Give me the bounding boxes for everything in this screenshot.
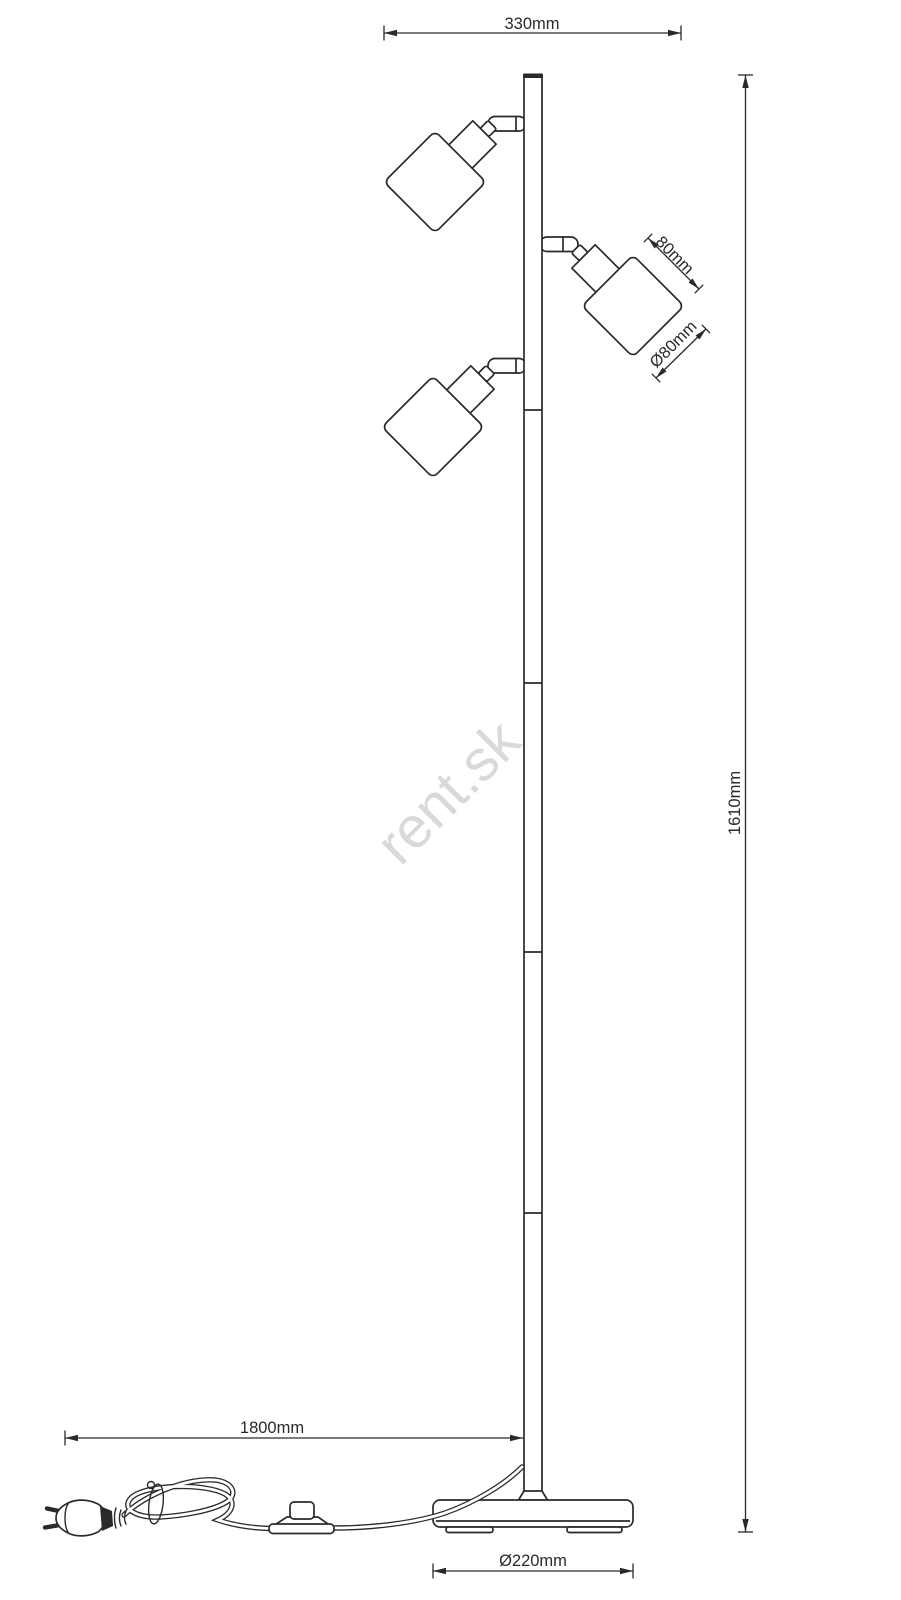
dimension-total-height: 1610mm	[726, 75, 753, 1532]
dimension-cable-length: 1800mm	[65, 1419, 523, 1446]
floor-lamp-dimension-drawing: rent.sk 330mm 1610mm 80mm Ø80mm	[0, 0, 901, 1600]
dimension-total-height-label: 1610mm	[726, 771, 744, 835]
lamp-arm	[540, 237, 578, 252]
lamp-head-bottom	[382, 344, 526, 478]
switch-button	[290, 1502, 314, 1519]
technical-drawing-page: rent.sk 330mm 1610mm 80mm Ø80mm	[0, 0, 901, 1600]
pole-top-cap	[523, 74, 543, 79]
pole-body	[524, 75, 542, 1500]
plug-strain-relief-ribs	[115, 1508, 127, 1528]
foot-switch	[269, 1502, 334, 1534]
power-plug	[45, 1500, 126, 1536]
plug-body	[56, 1500, 105, 1536]
dimension-cable-length-label: 1800mm	[240, 1419, 304, 1437]
dimension-shade-height-label: 80mm	[652, 233, 697, 278]
lamp-arm	[488, 359, 526, 374]
base-foot-right	[567, 1527, 622, 1533]
watermark-text: rent.sk	[364, 707, 534, 877]
arrowhead-left	[433, 1568, 446, 1574]
dimension-top-width: 330mm	[384, 15, 681, 41]
plug-grip	[100, 1506, 113, 1531]
pole-collar	[519, 1491, 548, 1500]
arrowhead-right	[510, 1435, 523, 1441]
dimension-base-diameter: Ø220mm	[433, 1552, 633, 1579]
arrowhead-right	[668, 30, 681, 36]
arrowhead-right	[620, 1568, 633, 1574]
arrowhead-bottom	[742, 1519, 748, 1532]
dimension-top-width-label: 330mm	[504, 15, 559, 33]
dimension-base-diameter-label: Ø220mm	[499, 1552, 567, 1570]
lamp-pole	[523, 74, 543, 1501]
arrowhead-left	[65, 1435, 78, 1441]
switch-base	[269, 1524, 334, 1534]
lamp-base	[433, 1491, 633, 1533]
base-foot-left	[446, 1527, 493, 1533]
cable-coil-highlight	[124, 1480, 270, 1529]
arrowhead-top	[742, 75, 748, 88]
arrowhead-left	[384, 30, 397, 36]
lamp-head-top	[384, 99, 526, 233]
